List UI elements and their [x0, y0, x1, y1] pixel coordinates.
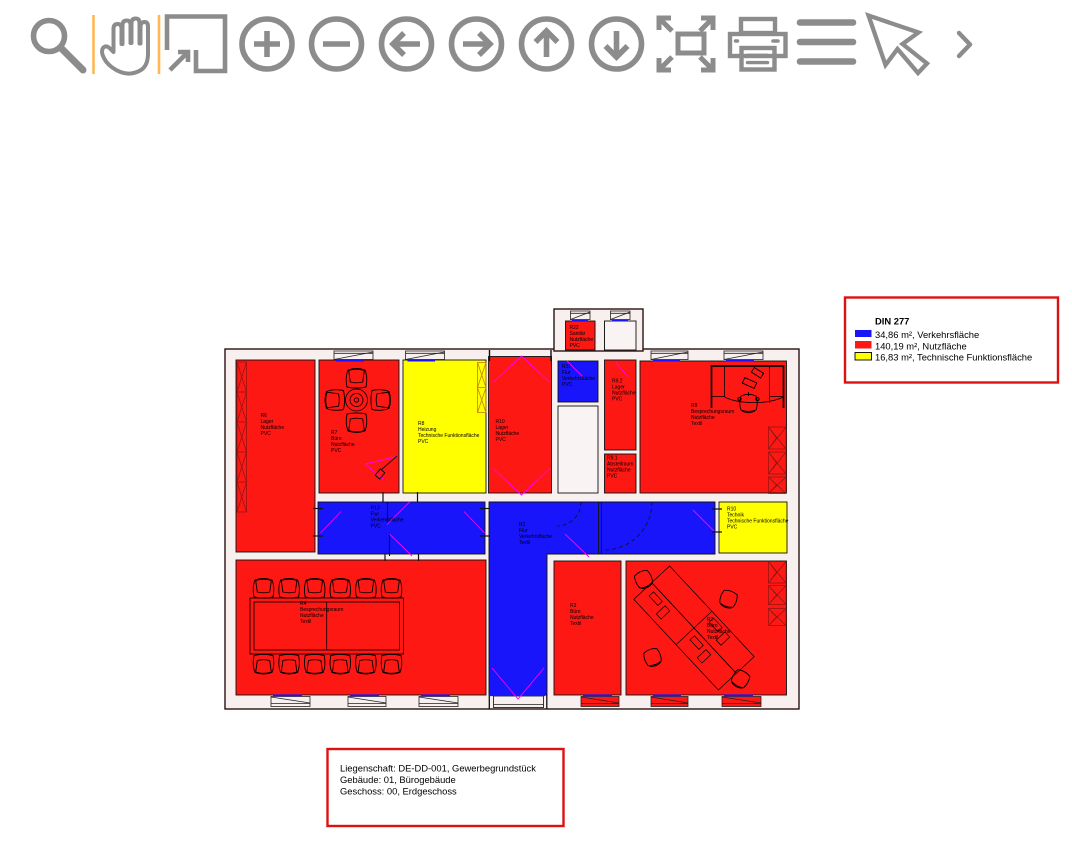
- svg-text:Textil: Textil: [707, 635, 718, 641]
- svg-text:PVC: PVC: [331, 448, 342, 454]
- svg-text:PVC: PVC: [562, 382, 573, 388]
- svg-text:DIN 277: DIN 277: [875, 316, 909, 327]
- svg-text:34,86 m², Verkehrsfläche: 34,86 m², Verkehrsfläche: [875, 329, 979, 340]
- svg-text:Textil: Textil: [691, 421, 702, 427]
- svg-text:16,83 m², Technische Funktions: 16,83 m², Technische Funktionsfläche: [875, 352, 1032, 363]
- svg-text:140,19 m², Nutzfläche: 140,19 m², Nutzfläche: [875, 340, 967, 351]
- svg-text:PVC: PVC: [371, 524, 382, 530]
- svg-text:Gebäude: 01, Bürogebäude: Gebäude: 01, Bürogebäude: [340, 774, 456, 785]
- svg-text:PVC: PVC: [727, 525, 738, 531]
- svg-text:PVC: PVC: [496, 437, 507, 443]
- svg-text:PVC: PVC: [418, 439, 429, 445]
- svg-text:Textil: Textil: [300, 619, 311, 625]
- svg-text:PVC: PVC: [261, 431, 272, 437]
- svg-text:Textil: Textil: [519, 540, 530, 546]
- svg-text:Textil: Textil: [570, 621, 581, 627]
- svg-text:PVC: PVC: [612, 397, 623, 403]
- svg-text:PVC: PVC: [607, 474, 618, 480]
- svg-text:Geschoss: 00, Erdgeschoss: Geschoss: 00, Erdgeschoss: [340, 786, 457, 797]
- svg-text:PVC: PVC: [570, 343, 581, 349]
- svg-text:Liegenschaft: DE-DD-001, Gewer: Liegenschaft: DE-DD-001, Gewerbegrundstü…: [340, 763, 536, 774]
